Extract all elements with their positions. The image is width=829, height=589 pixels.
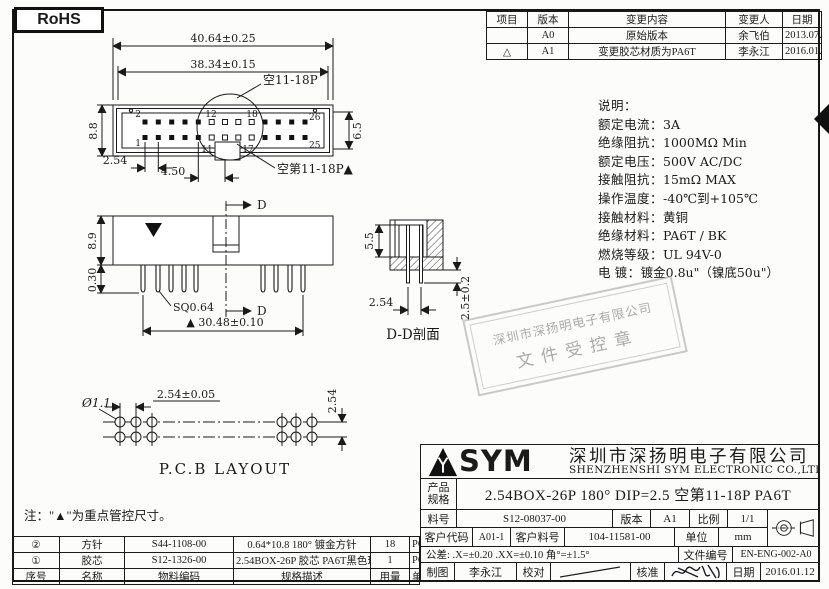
vacant-pins-callout: 空第11-18P▲ <box>277 162 354 176</box>
product-label-2: 规格 <box>428 494 450 506</box>
bom-header-row: 序号 名称 物料编码 规格描述 用量 单位 <box>13 569 420 585</box>
date-label: 日期 <box>727 563 761 581</box>
projection-symbol-cell <box>767 510 819 546</box>
bom-no: ① <box>13 553 60 569</box>
pin-label: 11 <box>201 145 212 155</box>
customer-code-label: 客户代码 <box>421 528 473 546</box>
section-label: D <box>257 198 267 212</box>
company-names: 深圳市深扬明电子有限公司 SHENZHENSHI SYM ELECTRONIC … <box>567 445 819 478</box>
section-view-title: D-D剖面 <box>386 327 439 343</box>
dim-label: 5.5 <box>363 232 376 250</box>
spec-line: 绝缘阻抗：1000MΩ Min <box>598 134 823 153</box>
first-angle-projection-icon <box>772 517 816 539</box>
spec-label: 额定电压： <box>598 155 663 169</box>
hole-diameter-label: Ø1.1 <box>81 396 111 410</box>
pin-label: 26 <box>309 113 321 123</box>
spec-value: UL 94V-0 <box>663 247 722 262</box>
spec-label: 绝缘材料： <box>598 229 663 243</box>
customer-row: 客户代码 A01-1 客户料号 104-11581-00 单位 mm <box>421 528 767 546</box>
rev-version: A1 <box>528 44 569 60</box>
dim-label: 2.54 <box>369 296 394 309</box>
tolerance-value: 公差: .X=±0.20 .XX=±0.10 角°=±1.5° <box>421 547 679 562</box>
pin-label: 25 <box>309 141 321 151</box>
spec-value: 1000MΩ Min <box>663 135 747 150</box>
revision-row-a0: A0 原始版本 余飞伯 2013.07.26 <box>487 28 822 44</box>
date-value: 2016.01.12 <box>761 563 819 581</box>
bom-h-qty: 用量 <box>371 569 410 585</box>
tolerance-row: 公差: .X=±0.20 .XX=±0.10 角°=±1.5° 文件编号 EN-… <box>421 547 819 563</box>
spec-line: 燃烧等级：UL 94V-0 <box>598 246 823 265</box>
pcb-layout-drawing: Ø1.1 2.54±0.05 2.54 P.C.B LAYOUT <box>55 375 355 483</box>
customer-part-value: 104-11581-00 <box>565 528 675 546</box>
rev-h-changer: 变更人 <box>726 12 783 28</box>
pin-label: 18 <box>246 110 258 120</box>
bom-desc: 2.54BOX-26P 胶芯 PA6T黑色环保 △ <box>234 553 371 569</box>
bom-code: S44-1108-00 <box>125 537 234 553</box>
dim-label: 38.34±0.15 <box>190 58 255 71</box>
product-spec-value: 2.54BOX-26P 180° DIP=2.5 空第11-18P PA6T <box>457 479 819 509</box>
rev-content: 变更胶芯材质为PA6T <box>569 44 726 60</box>
drawn-by-value: 李永江 <box>455 563 517 581</box>
spec-line: 操作温度：-40℃到+105℃ <box>598 190 823 209</box>
dim-label: 40.64±0.25 <box>190 32 255 45</box>
approved-by-signature <box>665 563 727 581</box>
dim-label: 8.8 <box>87 122 100 140</box>
part-customer-rows: 料号 S12-08037-00 版本 A1 比例 1/1 客户代码 A01-1 … <box>421 510 819 547</box>
dim-label: 8.9 <box>86 232 99 250</box>
spec-label: 绝缘阻抗： <box>598 136 663 150</box>
rev-date: 2016.01.12 <box>783 44 822 60</box>
signature-row: 制图 李永江 校对 核准 日期 2016.01.12 <box>421 563 819 581</box>
pin-label: 2 <box>135 110 141 120</box>
scale-value: 1/1 <box>728 510 767 527</box>
spec-line: 电 镀：镀金0.8u"（镍底50u"） <box>598 264 823 283</box>
company-logo: SYM <box>421 445 567 478</box>
top-view-drawing: 40.64±0.25 38.34±0.15 2 12 18 <box>85 30 377 208</box>
spec-line: 绝缘材料：PA6T / BK <box>598 227 823 246</box>
dim-label: 2.5±0.2 <box>459 276 472 320</box>
bom-unit: PCS <box>410 537 420 553</box>
bom-no: ② <box>13 537 60 553</box>
spec-value: 黄铜 <box>663 210 688 225</box>
rev-h-content: 变更内容 <box>569 12 726 28</box>
doc-number-label: 文件编号 <box>679 547 733 562</box>
pin-label: 1 <box>135 139 141 149</box>
bom-name: 胶芯 <box>60 553 125 569</box>
dim-label: 4.50 <box>161 165 186 178</box>
product-spec-row: 产品 规格 2.54BOX-26P 180° DIP=2.5 空第11-18P … <box>421 479 819 510</box>
spec-value: 500V AC/DC <box>663 154 742 169</box>
drawn-by-label: 制图 <box>421 563 455 581</box>
pin-square-label: SQ0.64 <box>173 301 214 314</box>
customer-part-label: 客户料号 <box>511 528 565 546</box>
rohs-label: RoHS <box>37 11 81 29</box>
bom-table: ② 方针 S44-1108-00 0.64*10.8 180° 镀金方针 18 … <box>12 536 420 585</box>
bom-row: ① 胶芯 S12-1326-00 2.54BOX-26P 胶芯 PA6T黑色环保… <box>13 553 420 569</box>
company-name-cn: 深圳市深扬明电子有限公司 <box>569 447 809 465</box>
spec-line: 接触阻抗：15mΩ MAX <box>598 171 823 190</box>
rev-h-item: 项目 <box>487 12 528 28</box>
logo-text: SYM <box>459 447 533 476</box>
rev-item <box>487 28 528 44</box>
vacant-pins-callout: 空11-18P <box>263 73 318 87</box>
bom-name: 方针 <box>60 537 125 553</box>
bom-qty: 1 <box>371 553 410 569</box>
dim-label: ▲ 30.48±0.10 <box>186 316 263 329</box>
part-number-value: S12-08037-00 <box>457 510 613 527</box>
pin-label: 12 <box>205 110 216 120</box>
company-row: SYM 深圳市深扬明电子有限公司 SHENZHENSHI SYM ELECTRO… <box>421 445 819 479</box>
rev-item: △ <box>487 44 528 60</box>
revision-table: 项目 版本 变更内容 变更人 日期 A0 原始版本 余飞伯 2013.07.26… <box>486 11 822 60</box>
bom-unit: PCS <box>410 553 420 569</box>
part-number-label: 料号 <box>421 510 457 527</box>
part-customer-left: 料号 S12-08037-00 版本 A1 比例 1/1 客户代码 A01-1 … <box>421 510 767 546</box>
bom-h-unit: 单位 <box>410 569 420 585</box>
spec-value: -40℃到+105℃ <box>663 191 758 206</box>
bom-h-no: 序号 <box>13 569 60 585</box>
spec-label: 电 镀： <box>598 266 641 280</box>
rev-content: 原始版本 <box>569 28 726 44</box>
dim-label: 2.54±0.05 <box>157 388 215 401</box>
datasheet-page: RoHS 项目 版本 变更内容 变更人 日期 A0 原始版本 余飞伯 2013.… <box>0 0 829 589</box>
product-label-1: 产品 <box>428 482 450 494</box>
dim-label: 2.54 <box>326 389 339 414</box>
dim-label: 0.30 <box>86 268 99 293</box>
bom-code: S12-1326-00 <box>125 553 234 569</box>
doc-number-value: EN-ENG-002-A0 <box>733 547 819 562</box>
spec-label: 额定电流： <box>598 118 663 132</box>
scale-label: 比例 <box>690 510 728 527</box>
revision-header-row: 项目 版本 变更内容 变更人 日期 <box>487 12 822 28</box>
approved-by-label: 核准 <box>631 563 665 581</box>
revision-row-a1: △ A1 变更胶芯材质为PA6T 李永江 2016.01.12 <box>487 44 822 60</box>
checked-by-label: 校对 <box>517 563 551 581</box>
bom-h-code: 物料编码 <box>125 569 234 585</box>
rev-changer: 余飞伯 <box>726 28 783 44</box>
rev-changer: 李永江 <box>726 44 783 60</box>
bom-row: ② 方针 S44-1108-00 0.64*10.8 180° 镀金方针 18 … <box>13 537 420 553</box>
rev-h-version: 版本 <box>528 12 569 28</box>
rev-version: A0 <box>528 28 569 44</box>
sym-logo-icon <box>427 447 459 477</box>
bom-h-desc: 规格描述 <box>234 569 371 585</box>
section-view-drawing: 5.5 2.54 2.5±0.2 D-D剖面 <box>355 195 487 347</box>
title-block: SYM 深圳市深扬明电子有限公司 SHENZHENSHI SYM ELECTRO… <box>420 444 820 582</box>
spec-label: 燃烧等级： <box>598 248 663 262</box>
spec-value: 15mΩ MAX <box>663 172 736 187</box>
pcb-layout-title: P.C.B LAYOUT <box>159 460 291 478</box>
spec-line: 额定电流：3A <box>598 116 823 135</box>
check-signature-icon <box>556 565 626 579</box>
spec-label: 接触材料： <box>598 211 663 225</box>
bom-desc: 0.64*10.8 180° 镀金方针 <box>234 537 371 553</box>
spec-label: 操作温度： <box>598 192 663 206</box>
approve-signature-icon <box>668 563 724 581</box>
spec-line: 额定电压：500V AC/DC <box>598 153 823 172</box>
spec-title: 说明： <box>598 97 823 116</box>
rev-date: 2013.07.26 <box>783 28 822 44</box>
front-view-drawing: D D 8.9 0.30 SQ0.64 ▲ 30.48±0.10 <box>85 195 377 345</box>
rev-h-date: 日期 <box>783 12 822 28</box>
spec-label: 接触阻抗： <box>598 173 663 187</box>
control-dimension-note: 注："▲"为重点管控尺寸。 <box>24 505 172 524</box>
customer-code-value: A01-1 <box>473 528 511 546</box>
unit-label: 单位 <box>675 528 719 546</box>
spec-value: PA6T / BK <box>663 228 726 243</box>
dim-label: 2.54 <box>103 154 128 167</box>
spec-value: 3A <box>663 117 680 132</box>
checked-by-signature <box>551 563 631 581</box>
spec-line: 接触材料：黄铜 <box>598 209 823 228</box>
unit-value: mm <box>719 528 767 546</box>
version-value: A1 <box>651 510 690 527</box>
product-spec-label: 产品 规格 <box>421 479 457 509</box>
part-number-row: 料号 S12-08037-00 版本 A1 比例 1/1 <box>421 510 767 528</box>
spec-notes: 说明： 额定电流：3A 绝缘阻抗：1000MΩ Min 额定电压：500V AC… <box>598 97 823 283</box>
version-label: 版本 <box>613 510 651 527</box>
bom-h-name: 名称 <box>60 569 125 585</box>
company-name-en: SHENZHENSHI SYM ELECTRONIC CO.,LTD <box>569 465 819 476</box>
dim-label: 6.5 <box>351 122 364 140</box>
bom-qty: 18 <box>371 537 410 553</box>
